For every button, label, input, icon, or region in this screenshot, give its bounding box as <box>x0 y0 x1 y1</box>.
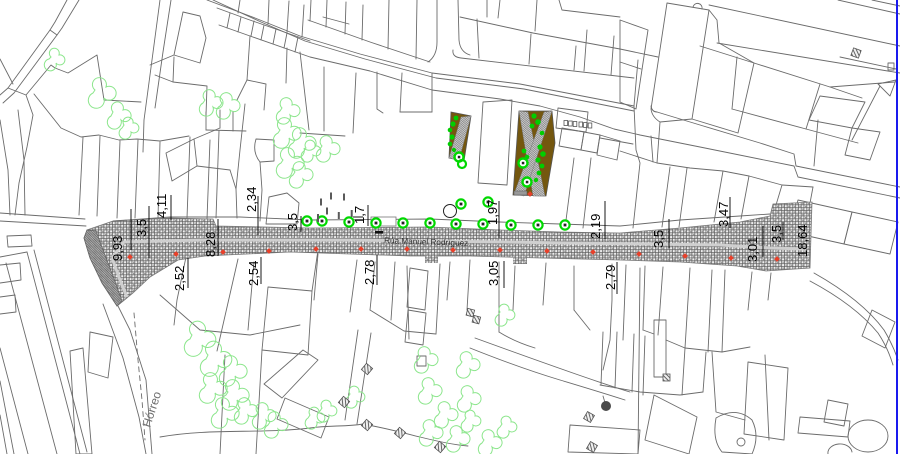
svg-text:4,11: 4,11 <box>154 194 169 218</box>
svg-text:3,01: 3,01 <box>745 237 760 262</box>
svg-text:1,97: 1,97 <box>485 200 500 225</box>
svg-text:3,5: 3,5 <box>285 213 300 231</box>
svg-text:2,52: 2,52 <box>172 266 187 291</box>
svg-text:2,19: 2,19 <box>588 214 603 239</box>
svg-text:18,64: 18,64 <box>795 224 810 257</box>
svg-text:3,05: 3,05 <box>486 261 501 286</box>
svg-text:8,28: 8,28 <box>203 232 218 257</box>
svg-text:2,54: 2,54 <box>246 261 261 286</box>
svg-text:1,7: 1,7 <box>352 206 367 224</box>
svg-text:3,5: 3,5 <box>769 225 784 243</box>
svg-text:2,34: 2,34 <box>244 187 259 212</box>
svg-text:9,93: 9,93 <box>110 236 125 261</box>
svg-text:2,78: 2,78 <box>362 260 377 285</box>
svg-text:2,79: 2,79 <box>603 265 618 290</box>
svg-text:3,5: 3,5 <box>134 219 149 237</box>
svg-text:3,47: 3,47 <box>716 202 731 227</box>
svg-text:3,5: 3,5 <box>651 230 666 248</box>
